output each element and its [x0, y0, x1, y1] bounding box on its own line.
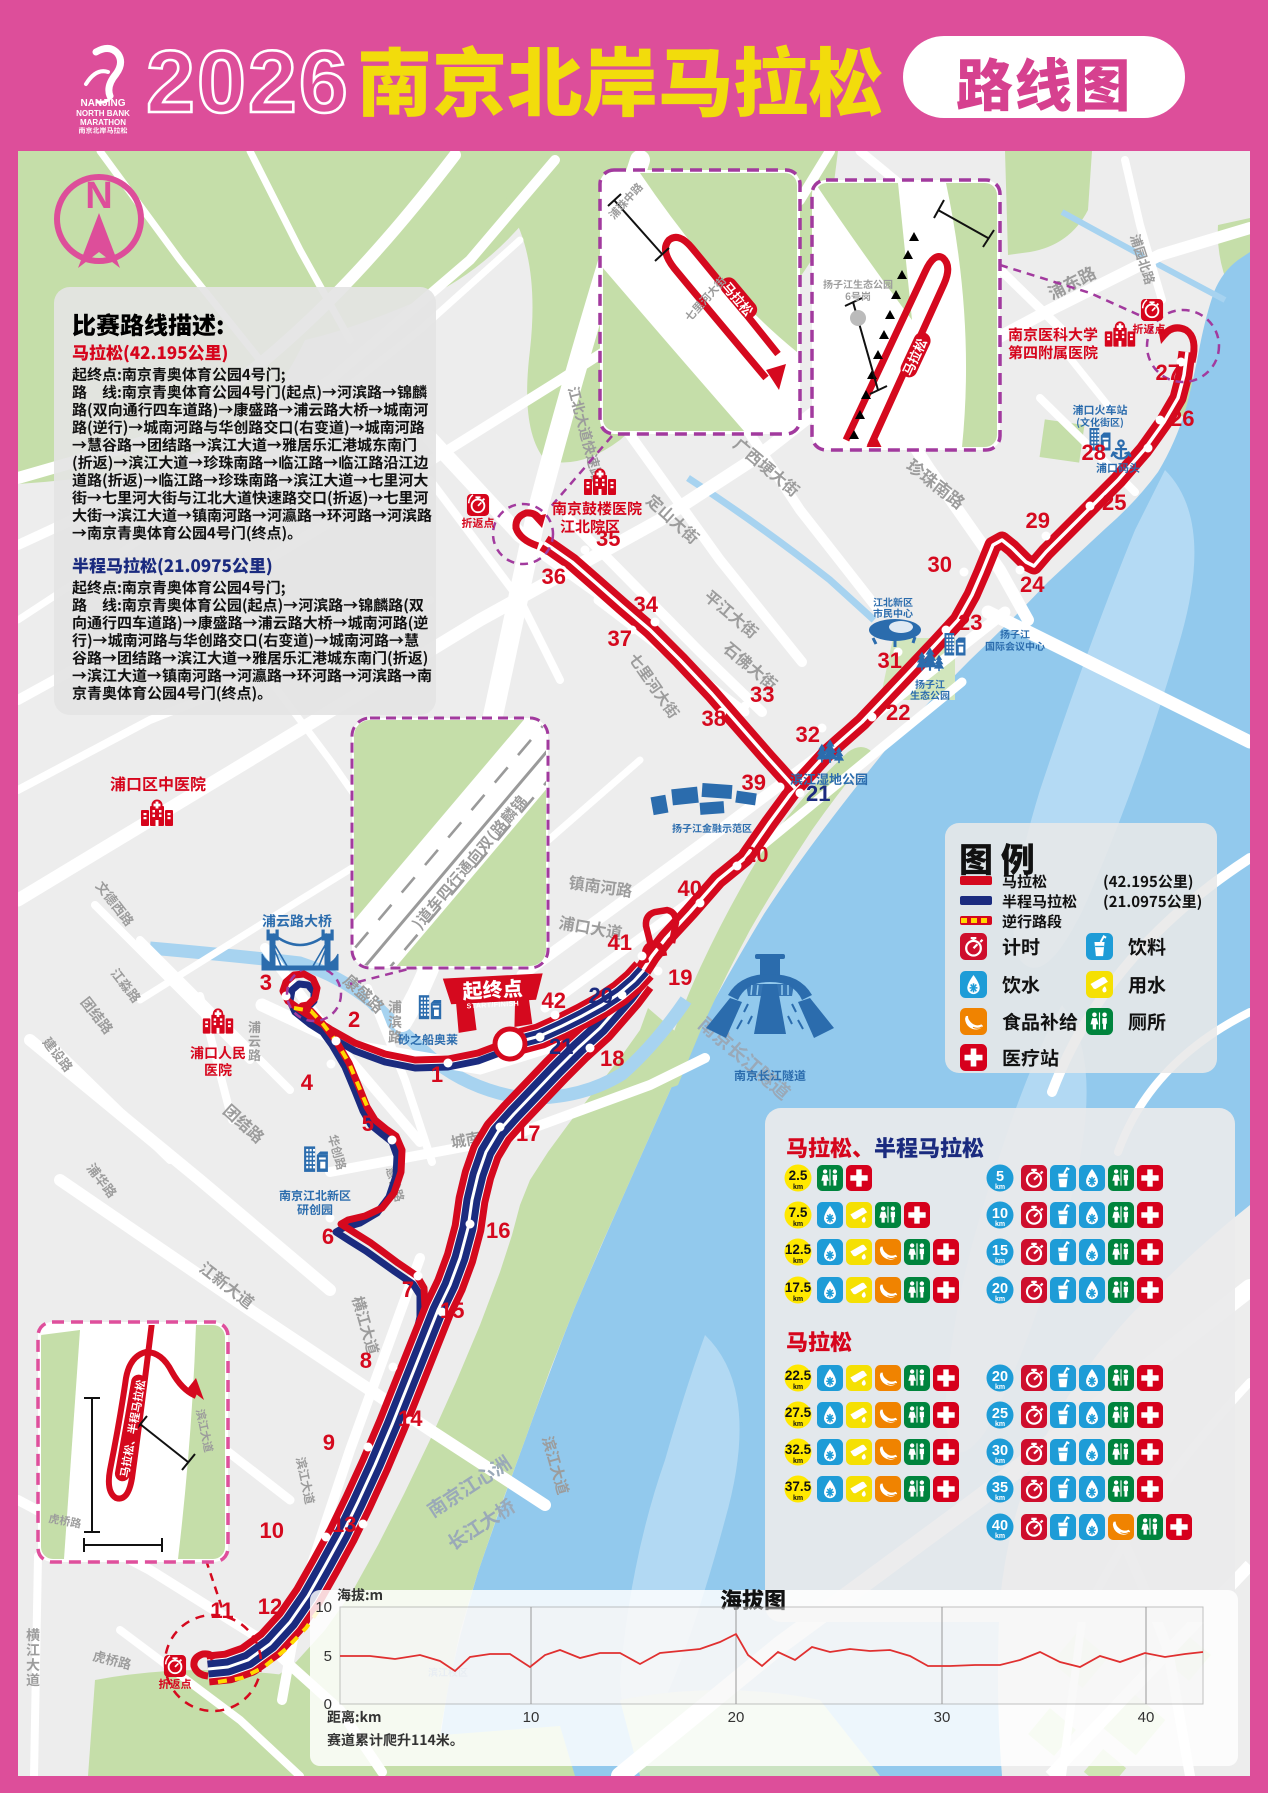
svg-text:21: 21 — [806, 781, 830, 806]
svg-text:NORTH BANK: NORTH BANK — [76, 109, 130, 118]
svg-text:17.5: 17.5 — [785, 1280, 812, 1295]
svg-text:38: 38 — [702, 706, 726, 731]
svg-text:17: 17 — [516, 1121, 540, 1146]
svg-text:36: 36 — [542, 564, 566, 589]
svg-text:37: 37 — [608, 626, 632, 651]
svg-text:9: 9 — [323, 1430, 335, 1455]
svg-text:km: km — [995, 1258, 1005, 1265]
svg-text:40: 40 — [1138, 1709, 1155, 1726]
svg-text:11: 11 — [210, 1598, 233, 1623]
svg-text:25: 25 — [992, 1406, 1008, 1422]
svg-text:5: 5 — [362, 1111, 374, 1136]
svg-text:37.5: 37.5 — [785, 1479, 812, 1494]
svg-text:34: 34 — [634, 592, 659, 617]
svg-text:4: 4 — [301, 1070, 314, 1095]
svg-text:0: 0 — [324, 1696, 332, 1713]
svg-text:km: km — [793, 1458, 803, 1465]
svg-text:13: 13 — [332, 1512, 356, 1537]
svg-text:NANJING: NANJING — [80, 98, 125, 109]
svg-text:14: 14 — [398, 1406, 423, 1431]
svg-text:5: 5 — [324, 1648, 332, 1665]
svg-text:22.5: 22.5 — [785, 1368, 812, 1383]
svg-text:km: km — [793, 1258, 803, 1265]
svg-text:26: 26 — [1170, 406, 1194, 431]
svg-text:25: 25 — [1102, 490, 1126, 515]
svg-text:km: km — [995, 1421, 1005, 1428]
svg-text:39: 39 — [742, 770, 766, 795]
svg-text:30: 30 — [934, 1709, 951, 1726]
svg-text:20: 20 — [992, 1369, 1008, 1385]
svg-text:2.5: 2.5 — [789, 1168, 808, 1183]
svg-text:6: 6 — [322, 1224, 334, 1249]
svg-text:12.5: 12.5 — [785, 1242, 812, 1257]
svg-text:22: 22 — [886, 700, 910, 725]
svg-text:10: 10 — [260, 1518, 284, 1543]
svg-text:7.5: 7.5 — [789, 1205, 808, 1220]
svg-text:km: km — [793, 1221, 803, 1228]
svg-text:20: 20 — [744, 842, 768, 867]
svg-text:30: 30 — [928, 552, 952, 577]
svg-text:km: km — [793, 1421, 803, 1428]
svg-text:km: km — [793, 1495, 803, 1502]
svg-text:15: 15 — [440, 1298, 464, 1323]
svg-text:27: 27 — [1156, 360, 1180, 385]
svg-text:29: 29 — [1026, 508, 1050, 533]
svg-text:km: km — [995, 1533, 1005, 1540]
svg-text:2026: 2026 — [146, 32, 350, 131]
svg-text:20: 20 — [992, 1281, 1008, 1297]
svg-text:km: km — [995, 1458, 1005, 1465]
svg-text:32: 32 — [796, 722, 820, 747]
svg-text:km: km — [995, 1495, 1005, 1502]
svg-text:N: N — [85, 175, 112, 217]
svg-text:40: 40 — [992, 1518, 1008, 1534]
svg-text:km: km — [995, 1296, 1005, 1303]
svg-text:km: km — [995, 1221, 1005, 1228]
svg-text:30: 30 — [992, 1443, 1008, 1459]
svg-text:MARATHON: MARATHON — [80, 118, 126, 127]
svg-text:5: 5 — [996, 1169, 1004, 1185]
svg-text:20: 20 — [589, 983, 613, 1008]
svg-text:2: 2 — [348, 1007, 360, 1032]
svg-text:20: 20 — [728, 1709, 745, 1726]
svg-text:10: 10 — [315, 1599, 332, 1616]
svg-text:km: km — [995, 1384, 1005, 1391]
svg-text:km: km — [793, 1384, 803, 1391]
svg-text:km: km — [793, 1184, 803, 1191]
svg-text:7: 7 — [402, 1277, 414, 1302]
svg-text:10: 10 — [992, 1206, 1008, 1222]
svg-text:33: 33 — [750, 682, 774, 707]
svg-text:28: 28 — [1082, 440, 1106, 465]
svg-text:31: 31 — [878, 648, 902, 673]
svg-text:41: 41 — [608, 930, 632, 955]
svg-text:21: 21 — [549, 1034, 573, 1059]
svg-text:16: 16 — [486, 1218, 510, 1243]
svg-text:40: 40 — [678, 876, 702, 901]
svg-text:35: 35 — [992, 1480, 1008, 1496]
svg-text:27.5: 27.5 — [785, 1405, 812, 1420]
svg-text:23: 23 — [958, 610, 982, 635]
svg-text:32.5: 32.5 — [785, 1442, 812, 1457]
svg-text:35: 35 — [596, 526, 620, 551]
svg-text:12: 12 — [258, 1594, 282, 1619]
svg-text:3: 3 — [260, 970, 272, 995]
svg-text:km: km — [793, 1296, 803, 1303]
svg-text:km: km — [995, 1184, 1005, 1191]
svg-text:24: 24 — [1020, 572, 1045, 597]
svg-text:10: 10 — [523, 1709, 540, 1726]
svg-text:19: 19 — [668, 965, 692, 990]
svg-text:15: 15 — [992, 1243, 1008, 1259]
svg-text:18: 18 — [600, 1046, 624, 1071]
svg-text:42: 42 — [542, 988, 566, 1013]
svg-text:8: 8 — [360, 1348, 372, 1373]
svg-text:1: 1 — [431, 1062, 443, 1087]
